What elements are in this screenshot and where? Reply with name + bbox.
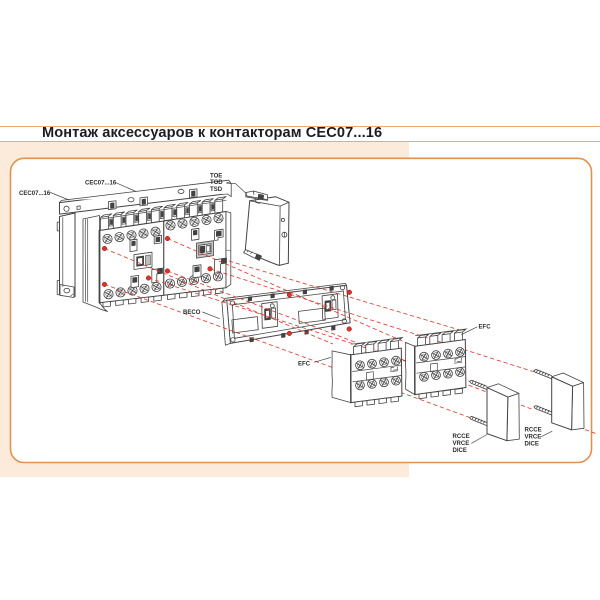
svg-text:CEC07...16: CEC07...16 [19,191,51,197]
svg-text:EFC: EFC [479,325,492,331]
svg-text:TOD: TOD [210,180,223,186]
svg-text:VRCE: VRCE [525,434,542,440]
svg-text:TOE: TOE [210,173,222,179]
svg-text:VRCE: VRCE [453,441,470,447]
svg-text:RCCE: RCCE [525,427,542,433]
svg-text:BECO: BECO [183,310,201,316]
svg-text:DICE: DICE [453,448,467,454]
svg-text:DICE: DICE [525,441,539,447]
svg-text:RCCE: RCCE [453,434,470,440]
svg-text:TSD: TSD [210,187,223,193]
svg-text:EFC: EFC [298,362,311,368]
svg-text:CEC07...16: CEC07...16 [85,181,117,187]
